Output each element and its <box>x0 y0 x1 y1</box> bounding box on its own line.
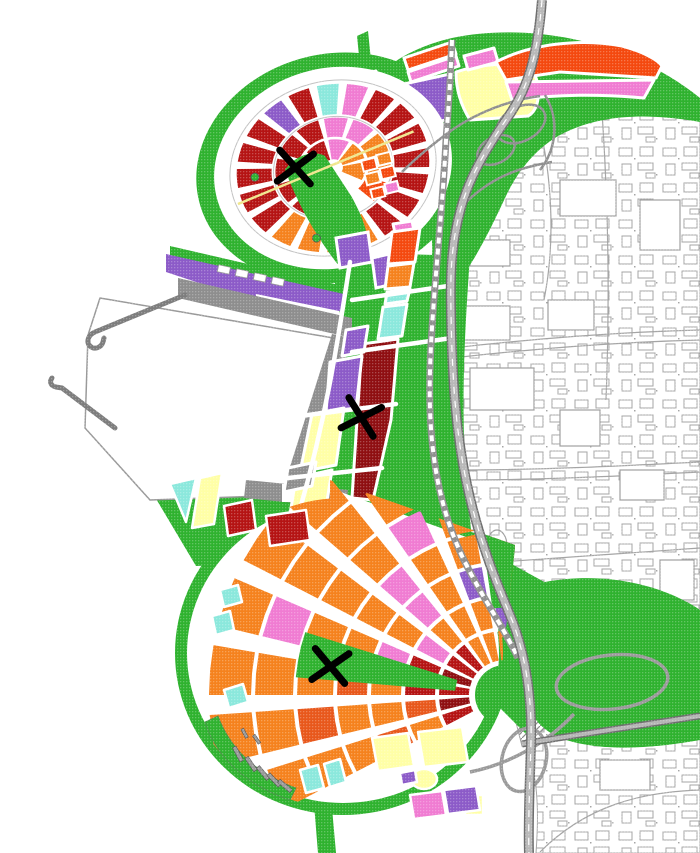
map-canvas <box>0 0 700 853</box>
masterplan-map <box>0 0 700 853</box>
